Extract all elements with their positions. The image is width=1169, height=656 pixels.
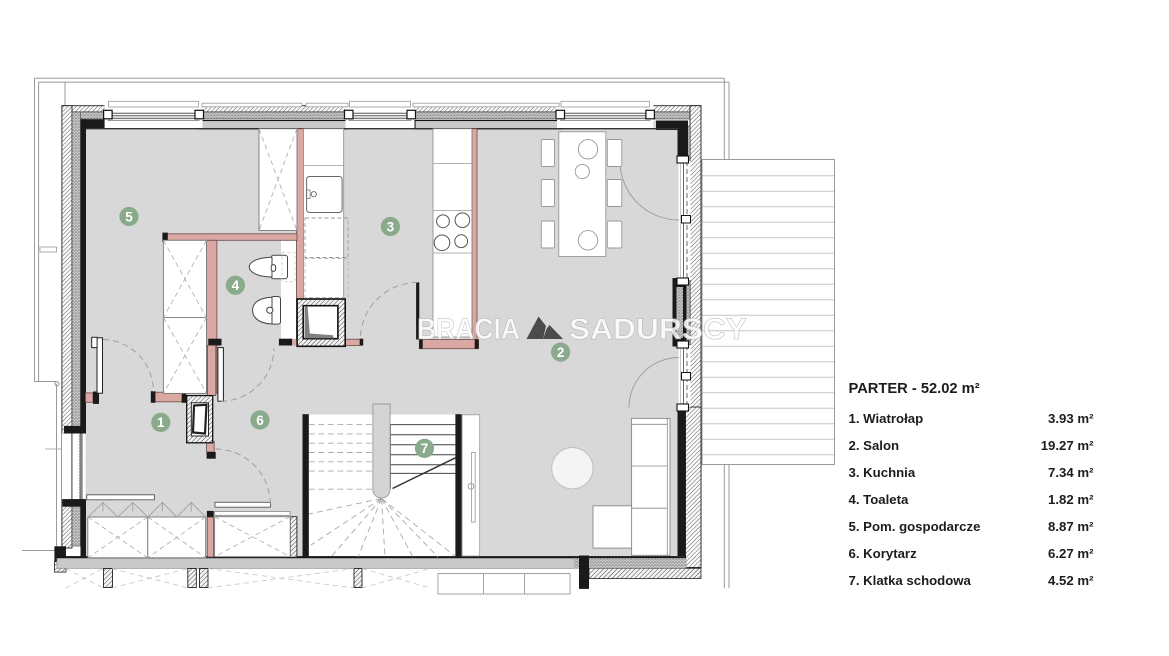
svg-text:SADURSCY: SADURSCY: [569, 313, 747, 346]
svg-text:3. Kuchnia: 3. Kuchnia: [849, 465, 916, 480]
svg-text:6.27 m²: 6.27 m²: [1048, 546, 1094, 561]
svg-text:5: 5: [125, 209, 133, 224]
svg-text:6. Korytarz: 6. Korytarz: [849, 546, 918, 561]
svg-text:4.52 m²: 4.52 m²: [1048, 573, 1094, 588]
svg-text:7. Klatka schodowa: 7. Klatka schodowa: [849, 573, 972, 588]
svg-text:8.87 m²: 8.87 m²: [1048, 519, 1094, 534]
svg-text:1: 1: [157, 415, 165, 430]
svg-text:2. Salon: 2. Salon: [849, 438, 900, 453]
svg-text:3: 3: [387, 219, 395, 234]
svg-text:6: 6: [256, 413, 264, 428]
svg-text:BRACIA: BRACIA: [417, 313, 520, 346]
svg-text:4: 4: [232, 278, 240, 293]
svg-text:5. Pom. gospodarcze: 5. Pom. gospodarcze: [849, 519, 981, 534]
svg-text:7.34 m²: 7.34 m²: [1048, 465, 1094, 480]
svg-text:1. Wiatrołap: 1. Wiatrołap: [849, 411, 924, 426]
svg-text:1.82 m²: 1.82 m²: [1048, 492, 1094, 507]
svg-text:2: 2: [557, 345, 565, 360]
svg-text:PARTER - 52.02 m²: PARTER - 52.02 m²: [849, 381, 980, 397]
svg-text:7: 7: [421, 441, 429, 456]
svg-text:4. Toaleta: 4. Toaleta: [849, 492, 910, 507]
svg-text:3.93 m²: 3.93 m²: [1048, 411, 1094, 426]
svg-text:19.27 m²: 19.27 m²: [1041, 438, 1094, 453]
